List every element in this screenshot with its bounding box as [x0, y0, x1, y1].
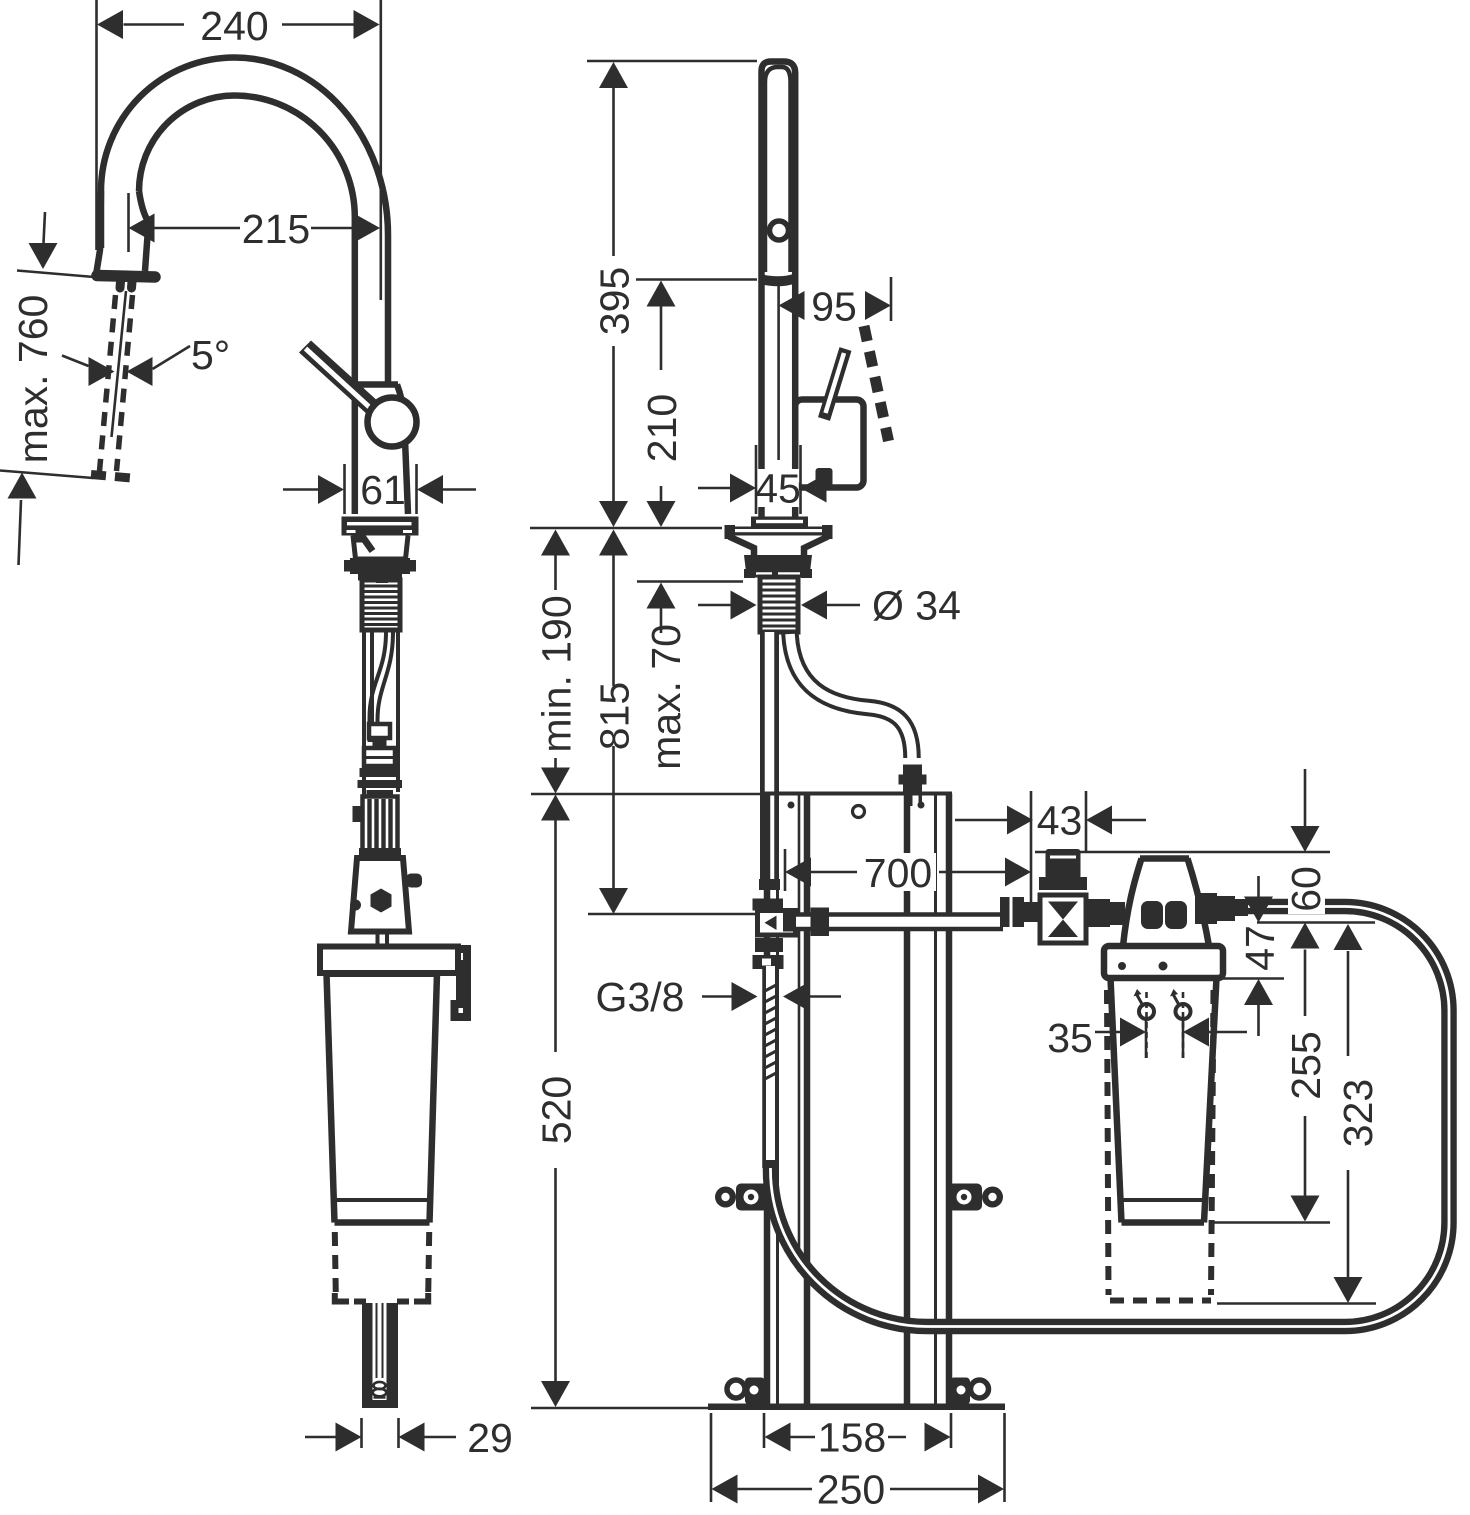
svg-text:158: 158 [818, 1415, 886, 1461]
svg-text:323: 323 [1335, 1079, 1381, 1147]
svg-text:max. 760: max. 760 [10, 295, 56, 464]
svg-text:395: 395 [592, 267, 638, 335]
svg-text:250: 250 [817, 1467, 885, 1513]
svg-text:35: 35 [1047, 1015, 1093, 1061]
svg-text:43: 43 [1037, 798, 1083, 844]
svg-text:815: 815 [592, 682, 638, 750]
svg-text:47: 47 [1237, 925, 1283, 971]
svg-text:Ø 34: Ø 34 [872, 583, 961, 629]
svg-text:5°: 5° [191, 332, 230, 378]
svg-text:61: 61 [360, 467, 406, 513]
svg-text:240: 240 [200, 3, 268, 49]
svg-text:700: 700 [864, 850, 932, 896]
svg-text:95: 95 [811, 284, 857, 330]
svg-text:255: 255 [1283, 1031, 1329, 1099]
svg-text:210: 210 [639, 394, 685, 462]
svg-text:29: 29 [467, 1415, 513, 1461]
svg-text:60: 60 [1283, 866, 1329, 912]
svg-text:min. 190: min. 190 [534, 595, 580, 752]
svg-text:45: 45 [755, 466, 801, 512]
svg-text:max. 70: max. 70 [643, 624, 689, 770]
svg-text:215: 215 [242, 206, 310, 252]
svg-text:G3/8: G3/8 [596, 974, 685, 1020]
svg-text:520: 520 [534, 1076, 580, 1144]
